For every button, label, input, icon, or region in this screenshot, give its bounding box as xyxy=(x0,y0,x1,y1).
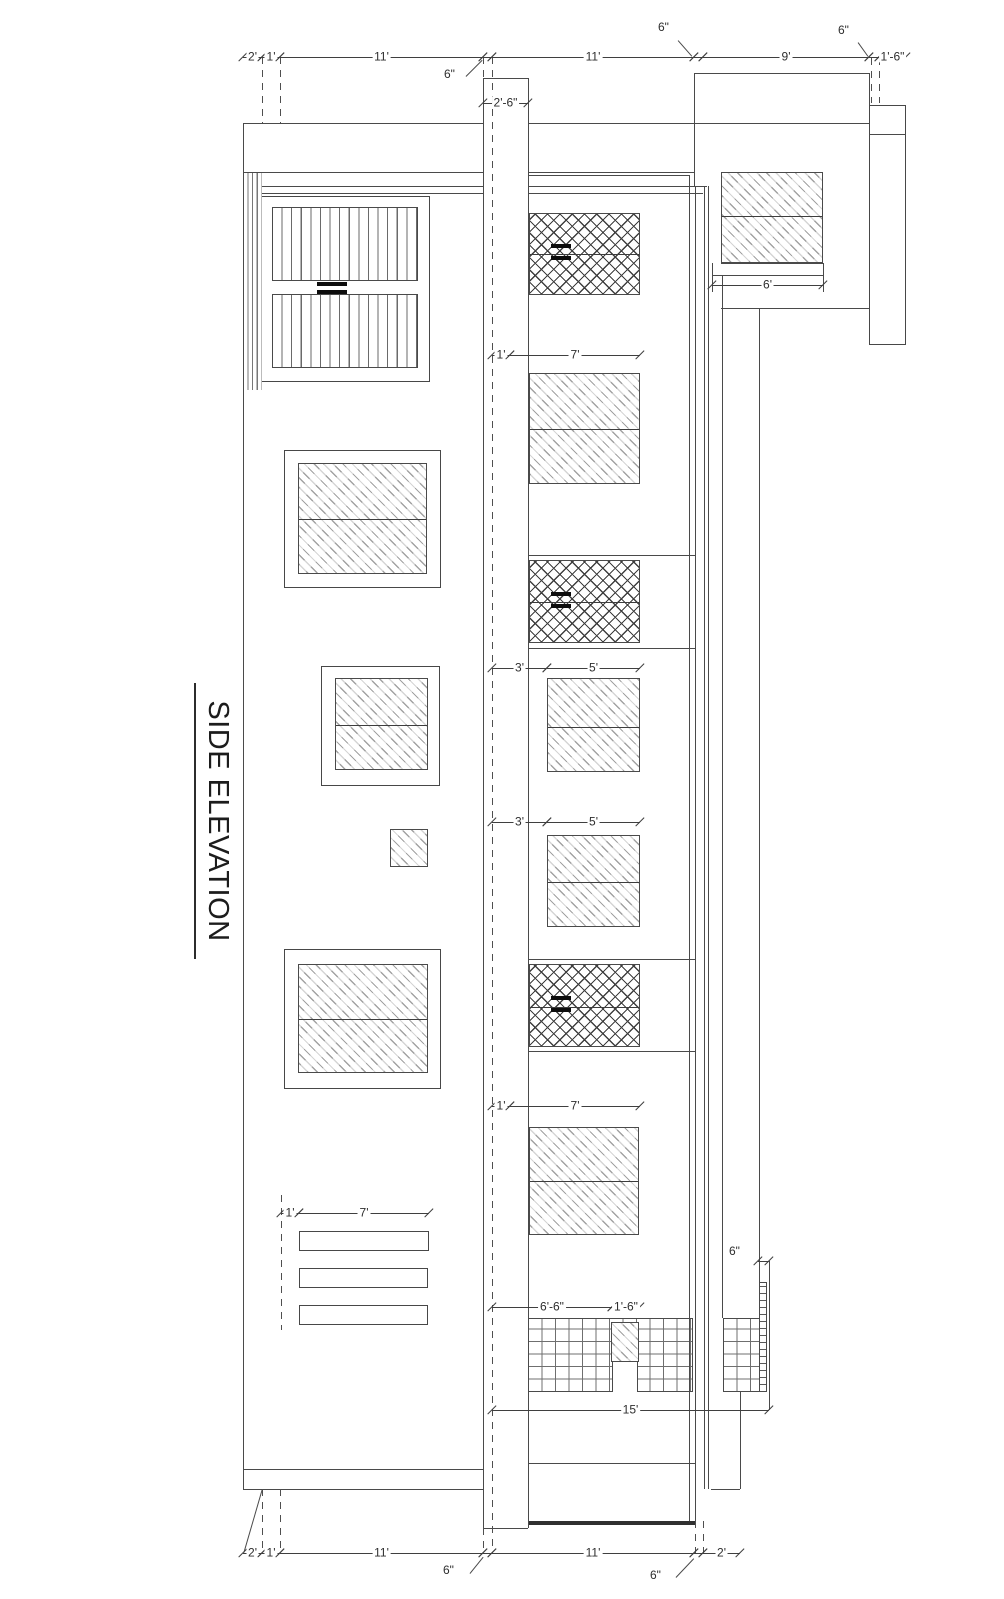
wall-line xyxy=(529,1521,695,1525)
wall-line xyxy=(759,308,760,1282)
leader-line xyxy=(678,40,693,57)
dimension-label: 1'-6" xyxy=(612,1300,640,1312)
window-hatch xyxy=(547,835,640,927)
dashed-extension-line xyxy=(879,58,880,103)
window-hatch xyxy=(335,678,428,770)
wall-line xyxy=(483,78,528,79)
sash-handle-bar xyxy=(551,256,571,260)
dimension-label: 7' xyxy=(358,1206,371,1218)
wall-line xyxy=(529,186,707,187)
dimension-label: 6'-6" xyxy=(538,1300,566,1312)
window-blank xyxy=(612,1362,638,1392)
window-edgehatch xyxy=(244,172,262,390)
wall-line xyxy=(483,1528,528,1529)
wall-line xyxy=(529,175,689,176)
dimension-label: 15' xyxy=(621,1403,641,1415)
wall-line xyxy=(722,276,723,1318)
wall-line xyxy=(262,186,483,187)
sash-handle-bar xyxy=(551,244,571,248)
wall-line xyxy=(769,1261,770,1410)
wall-line xyxy=(483,78,484,1528)
window-split-line xyxy=(530,602,639,603)
window-louver xyxy=(272,207,418,281)
dimension-label: 6" xyxy=(648,1569,663,1581)
dimension-label: 11' xyxy=(584,1546,603,1558)
window-hatch xyxy=(721,172,823,263)
window-louver xyxy=(272,294,418,368)
vent-slat xyxy=(299,1305,428,1325)
wall-line xyxy=(712,275,823,276)
dimension-label: 2'-6" xyxy=(492,96,520,108)
wall-line xyxy=(694,73,695,186)
wall-line xyxy=(529,1463,695,1464)
wall-line xyxy=(243,1469,483,1470)
dimension-label: 11' xyxy=(584,50,603,62)
dashed-extension-line xyxy=(262,57,263,123)
window-hatch xyxy=(529,373,640,484)
dimension-label: 3' xyxy=(513,661,526,673)
wall-line xyxy=(695,186,696,1521)
window-split-line xyxy=(336,725,427,726)
wall-line xyxy=(243,123,244,1489)
wall-line xyxy=(712,263,713,292)
window-split-line xyxy=(530,1007,639,1008)
dashed-extension-line xyxy=(871,58,872,103)
dimension-label: 2' xyxy=(715,1546,728,1558)
window-crosshatch xyxy=(529,560,640,643)
window-split-line xyxy=(548,882,639,883)
dimension-label: 11' xyxy=(372,1546,391,1558)
wall-line xyxy=(528,172,695,173)
leader-line xyxy=(243,1490,262,1552)
window-crosshatch xyxy=(529,964,640,1047)
sash-handle-bar xyxy=(551,604,571,608)
wall-line xyxy=(823,263,824,292)
dimension-label: 6" xyxy=(656,21,671,33)
dashed-extension-line xyxy=(280,57,281,123)
window-split-line xyxy=(530,254,639,255)
wall-line xyxy=(721,308,869,309)
wall-line xyxy=(528,78,529,1528)
wall-line xyxy=(708,186,709,1489)
wall-line xyxy=(721,263,823,264)
sash-handle-bar xyxy=(317,290,347,294)
dimension-label: 5' xyxy=(587,661,600,673)
wall-line xyxy=(711,1489,740,1490)
dashed-extension-line xyxy=(281,1195,282,1330)
drawing-title: SIDE ELEVATION xyxy=(194,683,234,959)
wall-line xyxy=(529,555,695,556)
wall-line xyxy=(528,123,869,124)
wall-line xyxy=(529,1051,695,1052)
sash-handle-bar xyxy=(551,592,571,596)
dimension-label: 7' xyxy=(569,1099,582,1111)
window-split-line xyxy=(530,429,639,430)
leader-line xyxy=(858,42,869,57)
dimension-label: 6" xyxy=(442,68,457,80)
vent-slat xyxy=(299,1231,429,1251)
window-hatch xyxy=(390,829,428,867)
leader-line xyxy=(676,1558,695,1578)
wall-line xyxy=(243,123,483,124)
dimension-label: 9' xyxy=(780,50,793,62)
dimension-label: 7' xyxy=(569,348,582,360)
wall-line xyxy=(262,193,483,194)
dashed-extension-line xyxy=(703,1521,704,1553)
window-split-line xyxy=(299,1019,427,1020)
sash-handle-bar xyxy=(551,1008,571,1012)
dimension-label: 6" xyxy=(441,1564,456,1576)
leader-line xyxy=(466,60,483,77)
window-split-line xyxy=(722,216,822,217)
window-split-line xyxy=(530,1181,638,1182)
wall-line xyxy=(694,73,869,74)
window-hatch xyxy=(298,964,428,1073)
window-hatch xyxy=(529,1127,639,1235)
wall-line xyxy=(243,172,483,173)
wall-line xyxy=(689,175,690,1521)
dimension-label: 3' xyxy=(513,815,526,827)
dashed-extension-line xyxy=(280,1489,281,1553)
vent-slat xyxy=(299,1268,428,1288)
dashed-extension-line xyxy=(262,1489,263,1553)
window-hatch xyxy=(547,678,640,772)
window-hatch xyxy=(611,1322,639,1362)
dimension-label: 6" xyxy=(836,24,851,36)
wall-line xyxy=(869,134,906,135)
dimension-label: 5' xyxy=(587,815,600,827)
wall-return xyxy=(869,105,906,345)
window-downspout xyxy=(759,1282,767,1392)
wall-line xyxy=(529,648,695,649)
window-split-line xyxy=(548,727,639,728)
window-hatch xyxy=(298,463,427,574)
window-split-line xyxy=(299,519,426,520)
sash-handle-bar xyxy=(317,282,347,286)
wall-line xyxy=(243,1489,483,1490)
window-crosshatch xyxy=(529,213,640,295)
dimension-label: 6" xyxy=(727,1245,742,1257)
elevation-drawing: SIDE ELEVATION 2'1'11'11'9'1'-6"2'-6"1'7… xyxy=(0,0,1004,1599)
dashed-extension-line xyxy=(492,57,493,1553)
dashed-extension-line xyxy=(483,57,484,78)
leader-line xyxy=(470,1557,484,1574)
sash-handle-bar xyxy=(551,996,571,1000)
dimension-label: 1'-6" xyxy=(879,50,907,62)
wall-line xyxy=(869,73,870,105)
wall-line xyxy=(529,193,703,194)
dimension-label: 6' xyxy=(761,278,774,290)
wall-line xyxy=(740,1392,741,1489)
wall-line xyxy=(704,186,705,1489)
wall-line xyxy=(529,959,695,960)
dimension-label: 11' xyxy=(372,50,391,62)
